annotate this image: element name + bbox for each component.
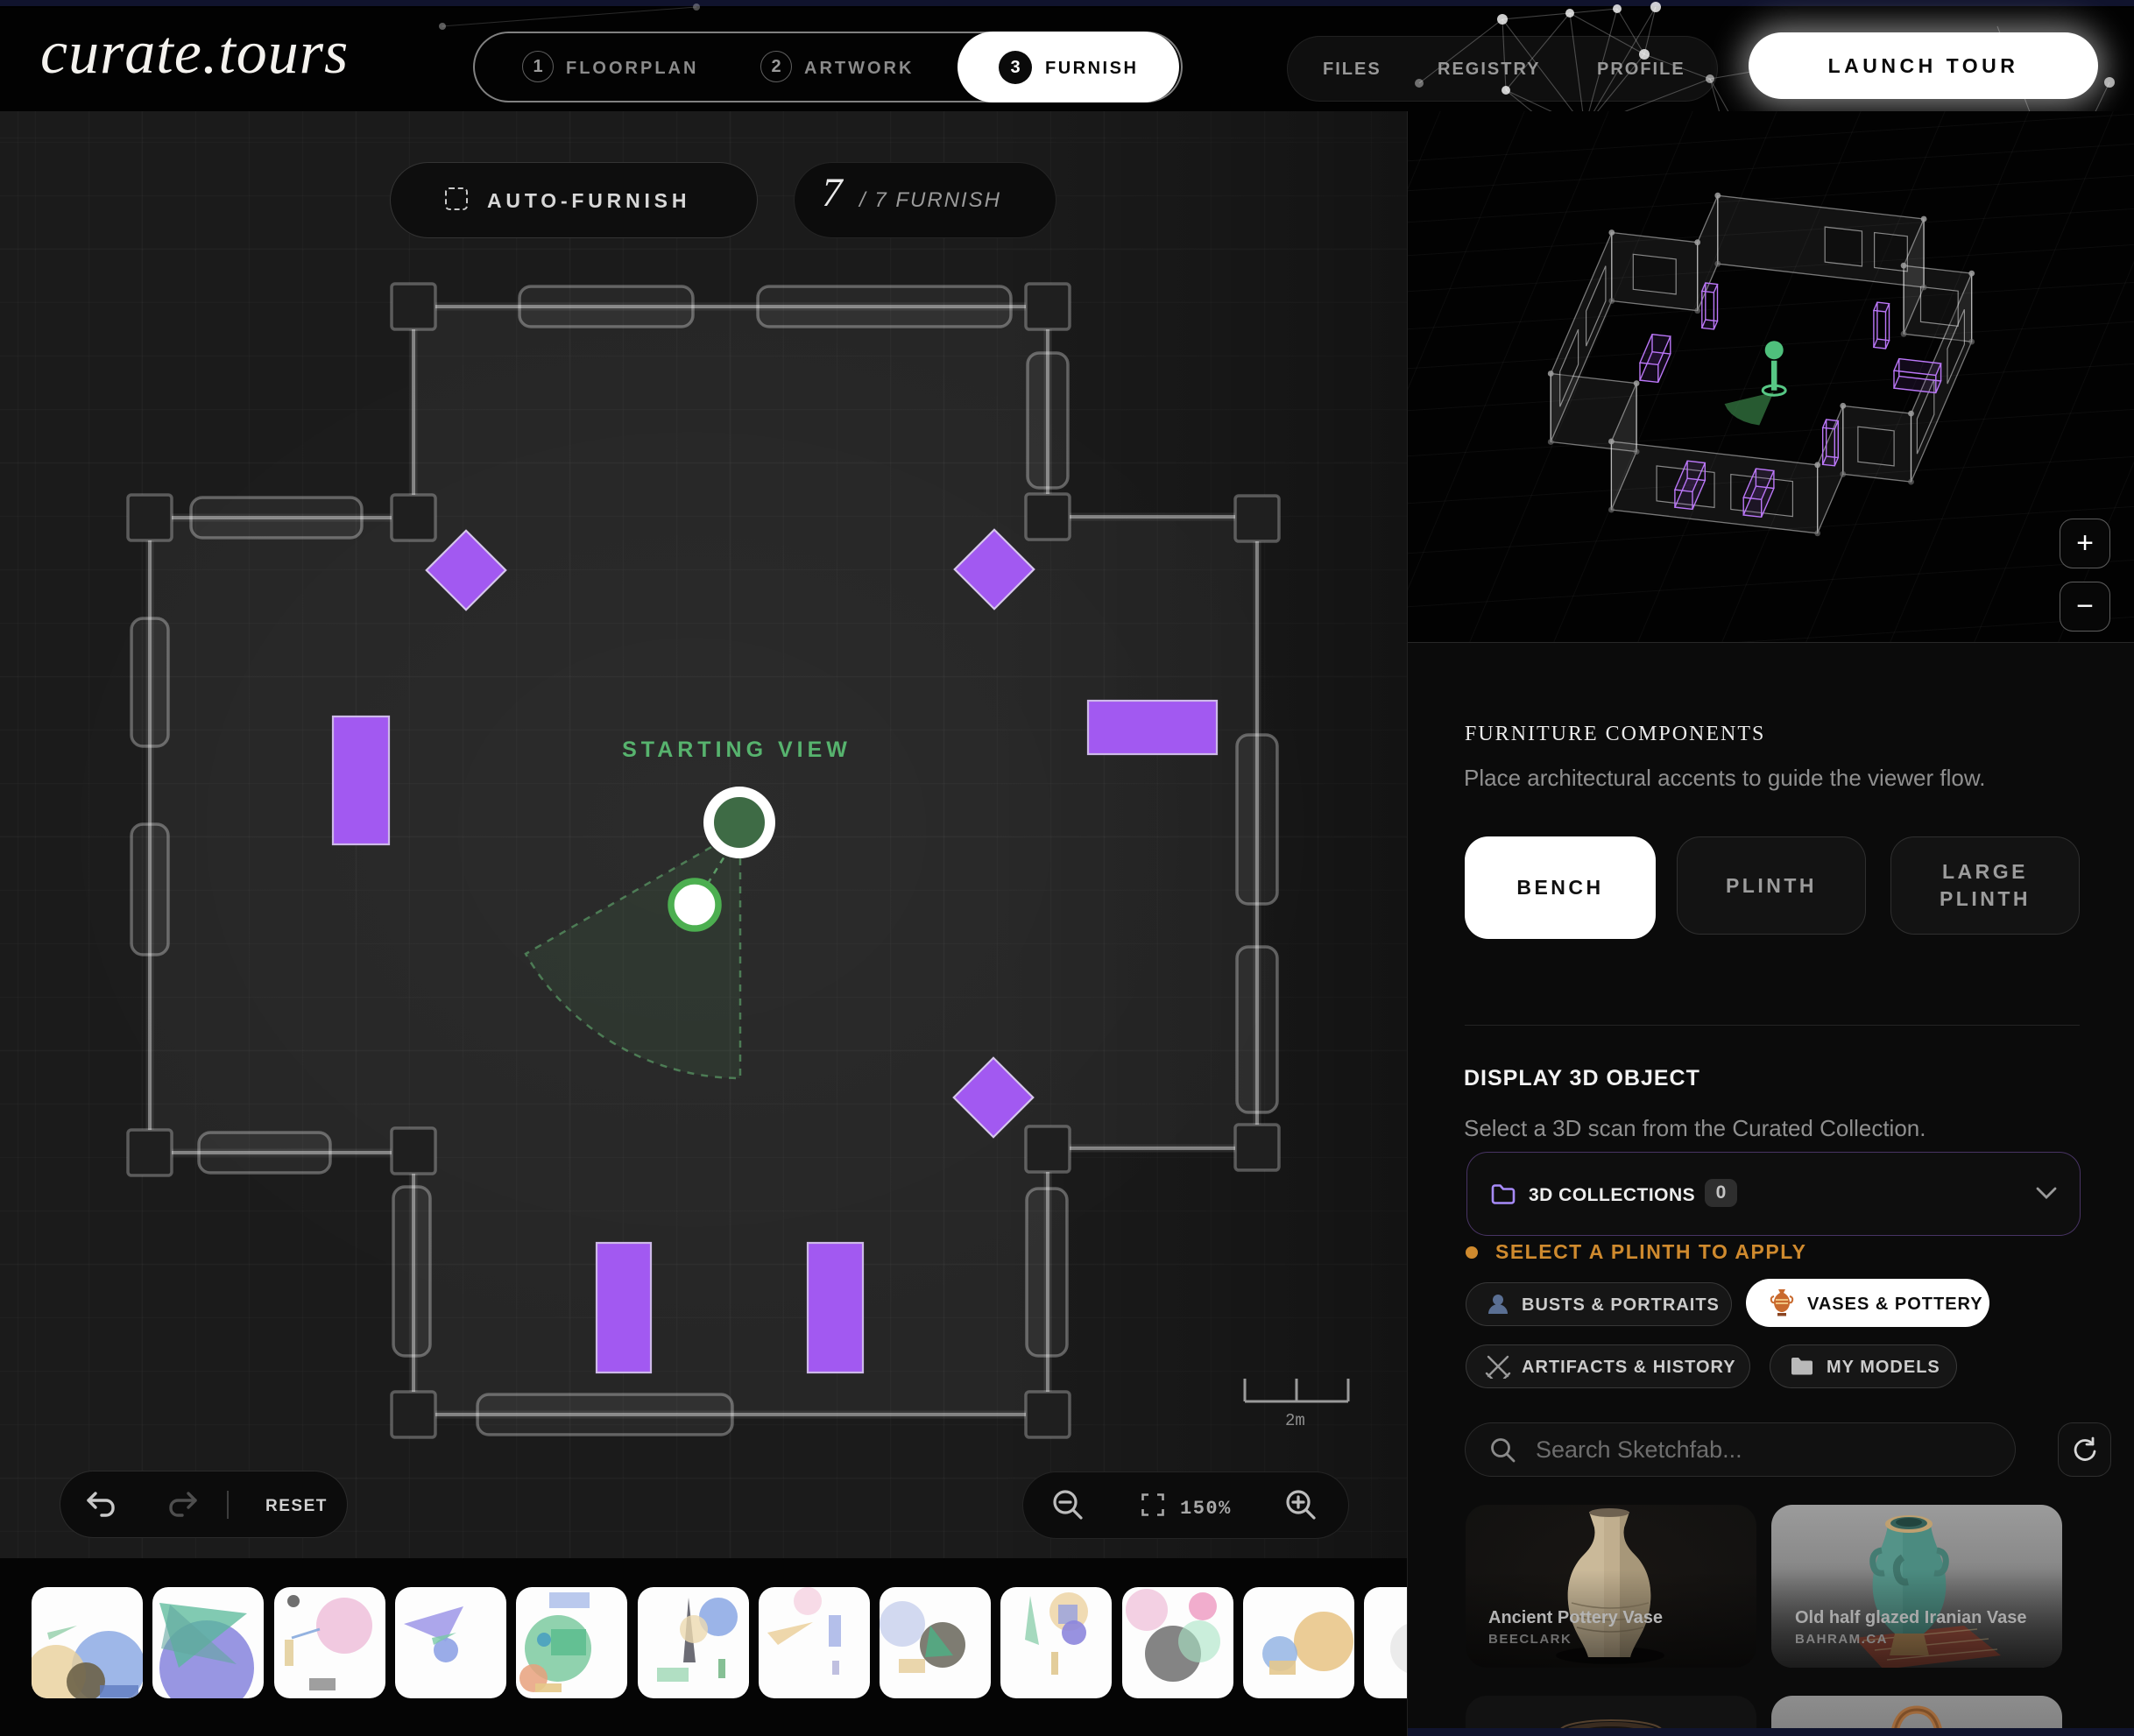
svg-text:2m: 2m (1285, 1411, 1305, 1430)
svg-text:STARTING VIEW: STARTING VIEW (622, 737, 851, 762)
